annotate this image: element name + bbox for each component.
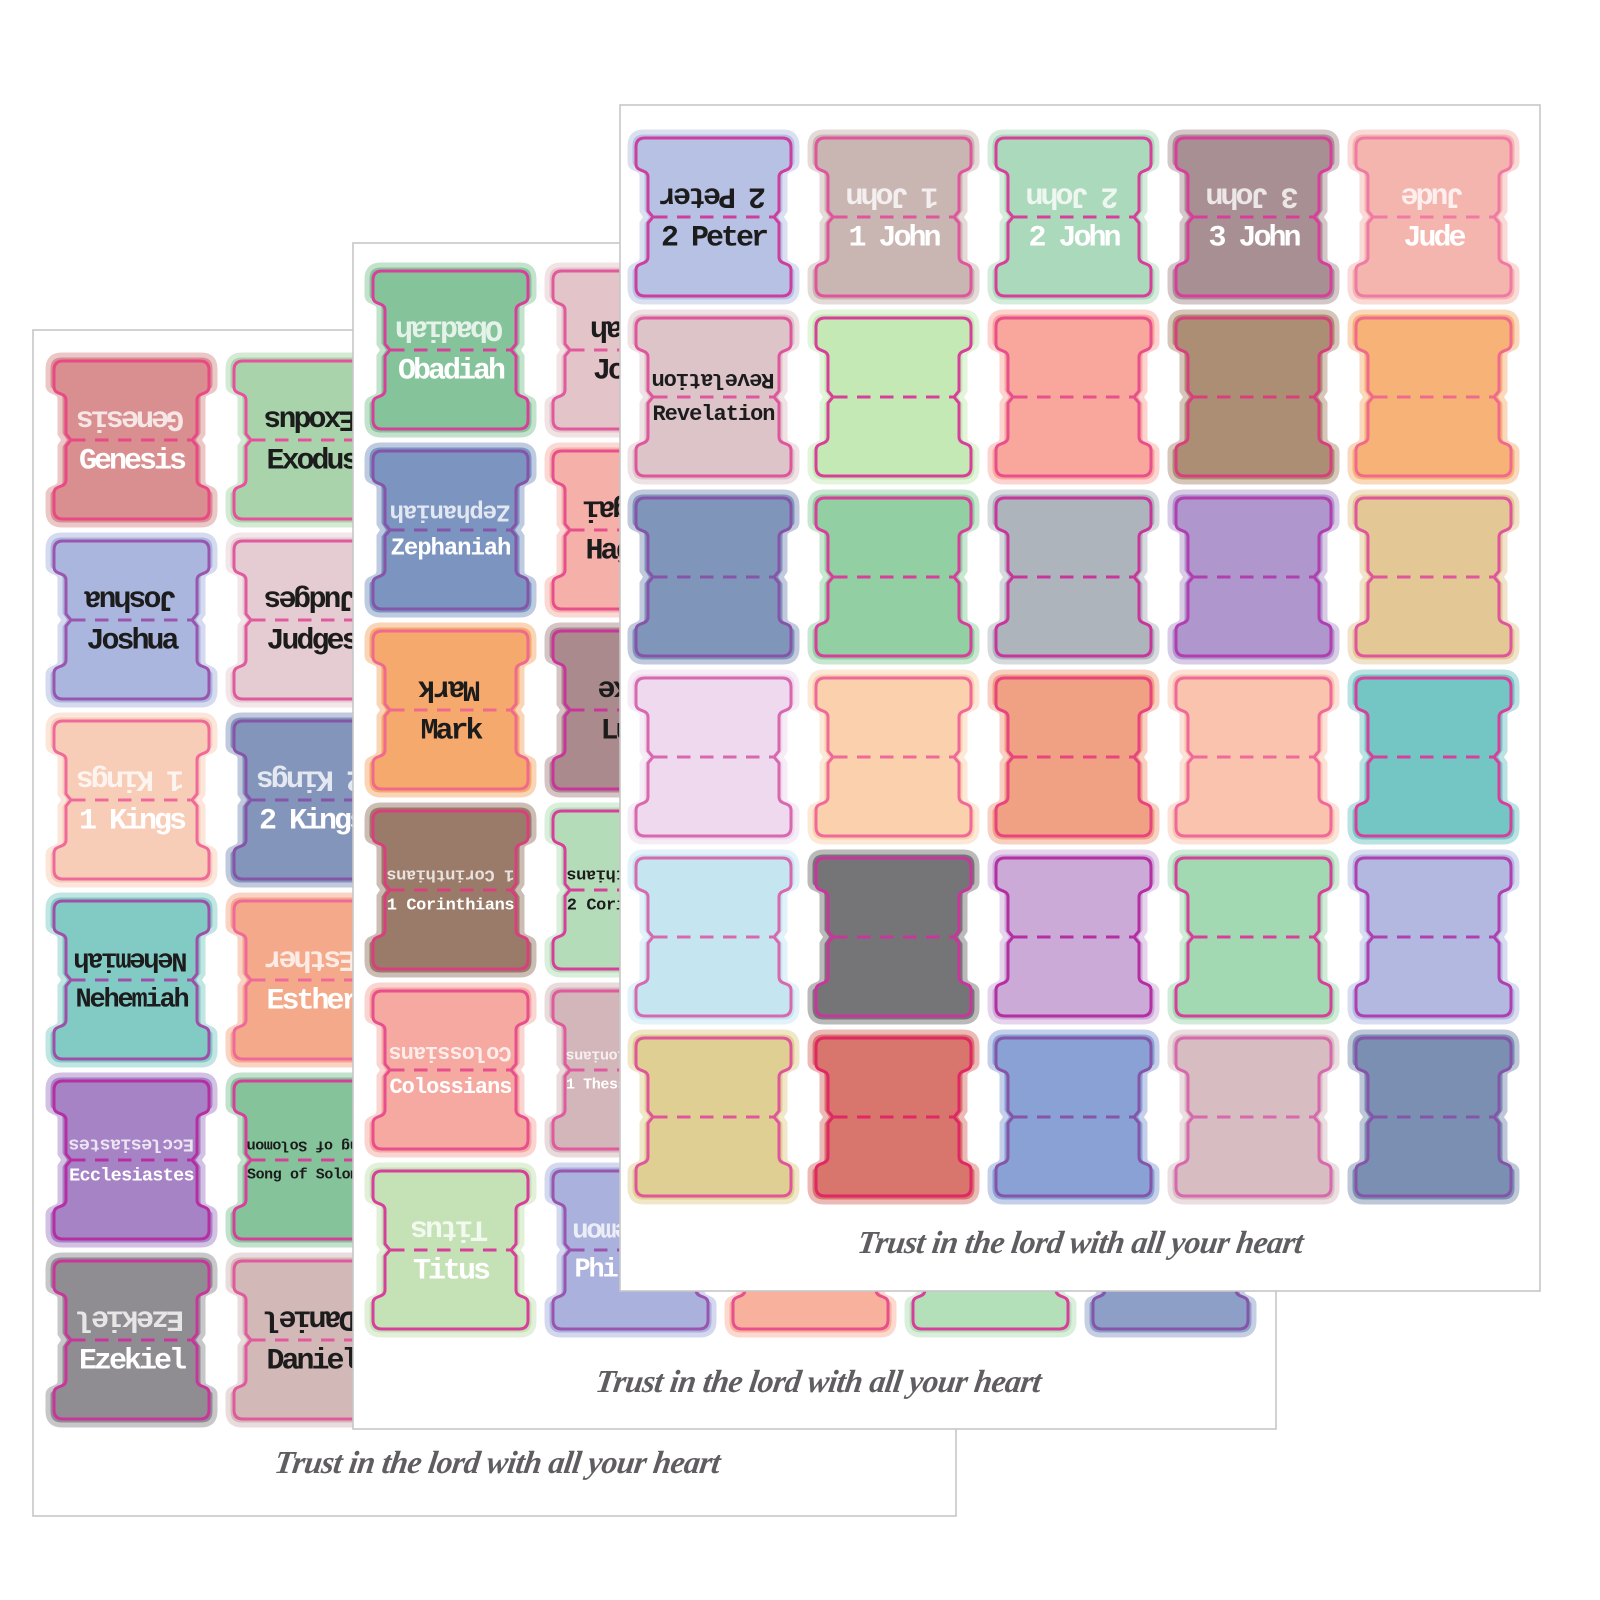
svg-text:3 John: 3 John bbox=[1208, 222, 1300, 256]
svg-text:3 John: 3 John bbox=[1207, 178, 1299, 212]
svg-text:2 John: 2 John bbox=[1028, 222, 1120, 256]
svg-text:1 Kings: 1 Kings bbox=[77, 761, 184, 795]
svg-text:Trust in the lord with all you: Trust in the lord with all your heart bbox=[594, 1363, 1046, 1399]
svg-text:Esther: Esther bbox=[266, 985, 357, 1019]
svg-text:2 Peter: 2 Peter bbox=[661, 222, 767, 256]
svg-text:1 Kings: 1 Kings bbox=[79, 805, 186, 839]
svg-text:Titus: Titus bbox=[411, 1211, 488, 1245]
svg-text:Judges: Judges bbox=[266, 625, 358, 659]
svg-text:Exodus: Exodus bbox=[266, 445, 358, 479]
svg-text:Jude: Jude bbox=[1403, 222, 1465, 256]
svg-text:Colossians: Colossians bbox=[389, 1075, 511, 1100]
svg-text:Zephaniah: Zephaniah bbox=[391, 536, 511, 563]
svg-text:1 John: 1 John bbox=[847, 178, 939, 212]
svg-text:Genesis: Genesis bbox=[77, 401, 184, 435]
svg-text:Mark: Mark bbox=[417, 671, 480, 705]
svg-text:Esther: Esther bbox=[266, 941, 357, 975]
svg-text:Titus: Titus bbox=[413, 1255, 490, 1289]
svg-text:Exodus: Exodus bbox=[265, 401, 357, 435]
svg-text:Daniel: Daniel bbox=[265, 1301, 357, 1335]
svg-text:1 John: 1 John bbox=[848, 222, 940, 256]
svg-text:Mark: Mark bbox=[420, 715, 483, 749]
svg-text:Colossians: Colossians bbox=[389, 1040, 511, 1065]
svg-text:Zephaniah: Zephaniah bbox=[391, 498, 511, 525]
svg-text:Obadiah: Obadiah bbox=[396, 311, 503, 345]
svg-text:Trust in the lord with all you: Trust in the lord with all your heart bbox=[273, 1444, 725, 1480]
svg-text:1 Corinthians: 1 Corinthians bbox=[387, 897, 515, 916]
svg-text:Joshua: Joshua bbox=[84, 581, 177, 615]
svg-text:Nehemiah: Nehemiah bbox=[75, 986, 188, 1016]
svg-text:2 Kings: 2 Kings bbox=[259, 805, 366, 839]
svg-text:Revelation: Revelation bbox=[652, 367, 774, 392]
svg-text:Ecclesiastes: Ecclesiastes bbox=[69, 1133, 194, 1154]
svg-text:Nehemiah: Nehemiah bbox=[74, 944, 187, 974]
svg-text:Obadiah: Obadiah bbox=[398, 355, 505, 389]
svg-text:Joshua: Joshua bbox=[86, 625, 179, 659]
svg-text:Trust in the lord with all you: Trust in the lord with all your heart bbox=[856, 1224, 1308, 1260]
svg-text:Revelation: Revelation bbox=[652, 402, 774, 427]
svg-text:Judges: Judges bbox=[265, 581, 357, 615]
svg-text:2 Peter: 2 Peter bbox=[660, 178, 766, 212]
svg-text:1 Corinthians: 1 Corinthians bbox=[387, 864, 515, 883]
svg-text:Ezekiel: Ezekiel bbox=[79, 1345, 186, 1379]
svg-text:Genesis: Genesis bbox=[79, 445, 186, 479]
svg-text:Daniel: Daniel bbox=[266, 1345, 358, 1379]
svg-text:2 John: 2 John bbox=[1027, 178, 1119, 212]
svg-text:Jude: Jude bbox=[1401, 178, 1463, 212]
svg-text:Ecclesiastes: Ecclesiastes bbox=[69, 1166, 194, 1187]
svg-text:Ezekiel: Ezekiel bbox=[77, 1301, 184, 1335]
svg-text:2 Kings: 2 Kings bbox=[257, 761, 364, 795]
